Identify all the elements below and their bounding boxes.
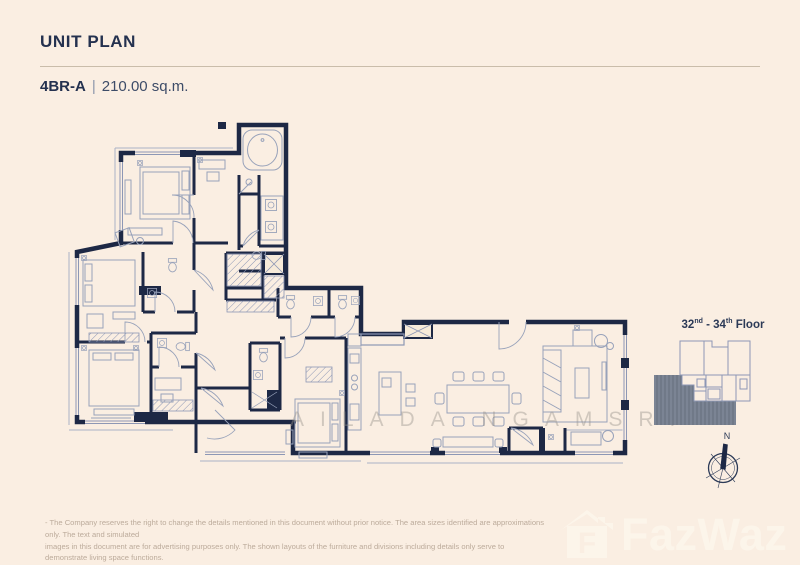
- bathroom-4: [157, 338, 189, 350]
- watermark-text: AILADA NGAMSRI: [290, 408, 691, 432]
- logo-text: FazWaz: [621, 512, 787, 557]
- powder-rooms: [286, 296, 359, 309]
- unit-info: 4BR-A|210.00 sq.m.: [40, 78, 188, 95]
- compass-north-label: N: [724, 431, 731, 441]
- keyplan-drawing: [648, 335, 798, 437]
- unit-code: 4BR-A: [40, 78, 86, 95]
- header-divider: [40, 66, 760, 67]
- fazwaz-logo: F FazWaz: [560, 508, 787, 560]
- compass-rose: [706, 444, 740, 489]
- fazwaz-house-icon: F: [560, 509, 614, 559]
- compass-icon: N: [698, 428, 750, 496]
- disclaimer-line-2: images in this document are for advertis…: [45, 541, 545, 565]
- floor-label: 32nd - 34th Floor: [648, 318, 798, 331]
- logo-icon-letter: F: [578, 527, 596, 559]
- keyplan: 32nd - 34th Floor: [648, 318, 798, 442]
- unit-plan-page: { "page": { "background": "#faeee2" }, "…: [0, 0, 800, 565]
- disclaimer-line-1: - The Company reserves the right to chan…: [45, 517, 545, 541]
- unit-area: 210.00 sq.m.: [102, 78, 189, 95]
- keyplan-unit-shade: [654, 375, 736, 425]
- floor-plan: AILADA NGAMSRI: [55, 100, 630, 485]
- page-title: UNIT PLAN: [40, 32, 136, 52]
- unit-separator: |: [86, 78, 102, 95]
- master-bedroom: [115, 160, 225, 247]
- disclaimer: - The Company reserves the right to chan…: [45, 517, 545, 564]
